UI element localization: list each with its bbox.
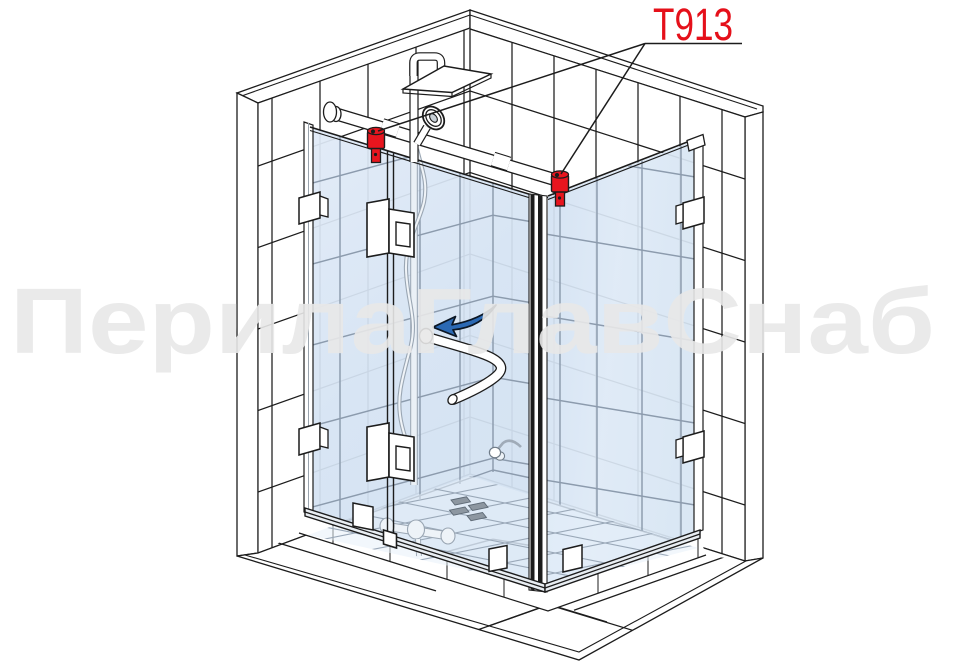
svg-text:ПерилаГлавСнаб: ПерилаГлавСнаб xyxy=(10,269,935,373)
svg-text:T913: T913 xyxy=(653,0,733,50)
